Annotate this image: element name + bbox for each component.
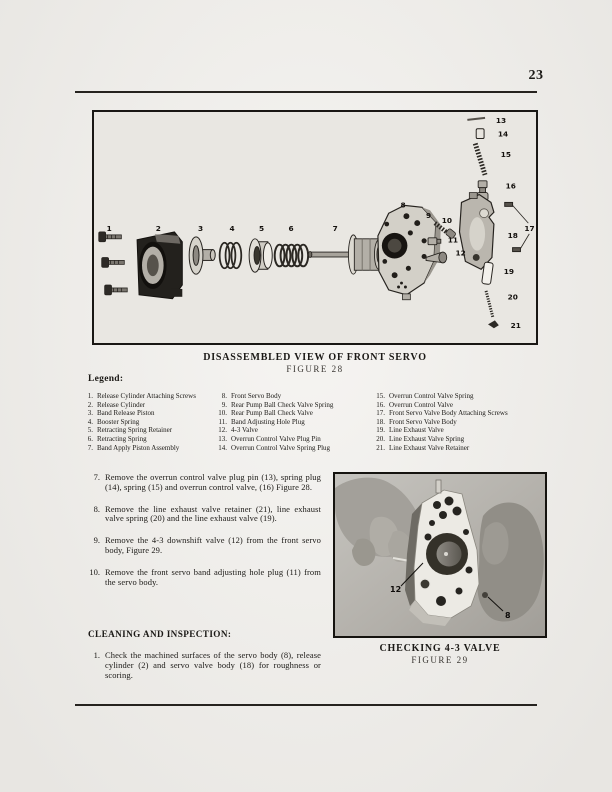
part-number-label: 4: [229, 224, 234, 233]
exploded-view-drawing: 123456789101112131415161718192021: [94, 112, 536, 343]
part-number-label: 13: [496, 116, 506, 125]
top-rule: [75, 91, 537, 93]
part-number-label: 9: [426, 211, 431, 220]
legend-item: 3.Band Release Piston: [80, 409, 232, 418]
legend-item-number: 12.: [214, 426, 227, 435]
part-retracting-spring: [275, 245, 308, 267]
part-number-label: 1: [107, 224, 112, 233]
legend-item-text: Front Servo Valve Body Attaching Screws: [389, 409, 508, 418]
legend-item-text: Rear Pump Ball Check Valve Spring: [231, 401, 333, 410]
part-number-label: 20: [508, 293, 518, 302]
legend-item-text: Band Adjusting Hole Plug: [231, 418, 305, 427]
part-number-label: 5: [259, 224, 264, 233]
legend-item-number: 17.: [372, 409, 385, 418]
legend-item-text: Band Apply Piston Assembly: [97, 444, 179, 453]
legend-item-number: 3.: [80, 409, 93, 418]
legend-item-number: 20.: [372, 435, 385, 444]
figure29-photo: 128: [333, 472, 547, 638]
legend-item-number: 6.: [80, 435, 93, 444]
part-hole-plug: [428, 238, 441, 245]
part-number-label: 3: [198, 224, 203, 233]
figure28-caption: DISASSEMBLED VIEW OF FRONT SERVO FIGURE …: [92, 352, 538, 374]
legend-item: 6.Retracting Spring: [80, 435, 232, 444]
legend-item-number: 18.: [372, 418, 385, 427]
legend-item: 19.Line Exhaust Valve: [372, 426, 540, 435]
part-spring-retainer: [249, 239, 272, 272]
part-exhaust-retainer: [488, 320, 499, 328]
manual-page: 23: [0, 0, 612, 792]
step-item: 9. Remove the 4-3 downshift valve (12) f…: [83, 536, 321, 556]
legend-item-number: 10.: [214, 409, 227, 418]
step-text: Remove the 4-3 downshift valve (12) from…: [105, 536, 321, 556]
checking-valve-photo: 128: [335, 474, 545, 636]
part-number-label: 16: [506, 182, 516, 191]
part-number-label: 17: [524, 224, 534, 233]
legend-column-2: 8.Front Servo Body 9.Rear Pump Ball Chec…: [214, 392, 374, 452]
legend-item-text: Overrun Control Valve Plug Pin: [231, 435, 321, 444]
legend-item-text: Release Cylinder: [97, 401, 145, 410]
legend-item-text: Retracting Spring: [97, 435, 147, 444]
part-band-release-piston: [189, 237, 215, 274]
figure28-title: DISASSEMBLED VIEW OF FRONT SERVO: [92, 352, 538, 363]
legend-item: 12.4-3 Valve: [214, 426, 374, 435]
part-front-servo-body: [378, 205, 441, 299]
part-attaching-screws: [99, 232, 128, 295]
legend-item: 14.Overrun Control Valve Spring Plug: [214, 444, 374, 453]
step-text: Remove the front servo band adjusting ho…: [105, 568, 321, 588]
legend-item-text: Booster Spring: [97, 418, 139, 427]
legend-item-number: 14.: [214, 444, 227, 453]
legend-item-number: 16.: [372, 401, 385, 410]
part-number-label: 21: [511, 321, 521, 330]
cleaning-section-heading: CLEANING AND INSPECTION:: [88, 629, 231, 639]
legend-item: 21.Line Exhaust Valve Retainer: [372, 444, 540, 453]
part-number-label: 15: [501, 150, 511, 159]
cleaning-step-item: 1. Check the machined surfaces of the se…: [83, 651, 321, 680]
legend-item-number: 11.: [214, 418, 227, 427]
figure28-diagram: 123456789101112131415161718192021: [92, 110, 538, 345]
legend-item-text: Retracting Spring Retainer: [97, 426, 172, 435]
part-number-label: 10: [442, 216, 452, 225]
legend-item-text: Band Release Piston: [97, 409, 155, 418]
legend-item-text: Overrun Control Valve: [389, 401, 453, 410]
part-overrun-spring: [475, 143, 485, 174]
legend-item-text: Overrun Control Valve Spring Plug: [231, 444, 330, 453]
page-number: 23: [524, 68, 548, 84]
legend-item: 18.Front Servo Valve Body: [372, 418, 540, 427]
part-number-label: 12: [390, 585, 401, 594]
legend-item-text: Release Cylinder Attaching Screws: [97, 392, 196, 401]
legend-item: 7.Band Apply Piston Assembly: [80, 444, 232, 453]
legend-column-1: 1.Release Cylinder Attaching Screws 2.Re…: [80, 392, 232, 452]
legend-item-text: Front Servo Body: [231, 392, 281, 401]
legend-item: 15.Overrun Control Valve Spring: [372, 392, 540, 401]
part-band-apply-piston: [308, 235, 383, 274]
legend-item-number: 13.: [214, 435, 227, 444]
legend-item-text: Line Exhaust Valve Retainer: [389, 444, 469, 453]
cleaning-steps: 1. Check the machined surfaces of the se…: [83, 651, 321, 692]
step-item: 10. Remove the front servo band adjustin…: [83, 568, 321, 588]
figure28-label: FIGURE 28: [92, 364, 538, 374]
part-spring-plug: [476, 129, 484, 139]
legend-item-text: Front Servo Valve Body: [389, 418, 457, 427]
legend-item: 11.Band Adjusting Hole Plug: [214, 418, 374, 427]
step-number: 9.: [83, 536, 100, 556]
legend-item-number: 7.: [80, 444, 93, 453]
step-number: 10.: [83, 568, 100, 588]
disassembly-steps: 7. Remove the overrun control valve plug…: [83, 473, 321, 599]
legend-item-number: 21.: [372, 444, 385, 453]
part-number-label: 19: [504, 267, 514, 276]
bottom-rule: [75, 704, 537, 706]
legend-item: 4.Booster Spring: [80, 418, 232, 427]
legend-item-number: 4.: [80, 418, 93, 427]
legend-item: 10.Rear Pump Ball Check Valve: [214, 409, 374, 418]
legend-heading: Legend:: [88, 374, 123, 384]
part-number-label: 8: [505, 611, 511, 620]
legend-item: 5.Retracting Spring Retainer: [80, 426, 232, 435]
legend-item-number: 2.: [80, 401, 93, 410]
legend-item-text: Line Exhaust Valve Spring: [389, 435, 464, 444]
part-release-cylinder: [137, 232, 182, 299]
step-text: Remove the line exhaust valve retainer (…: [105, 505, 321, 525]
legend-item-number: 19.: [372, 426, 385, 435]
part-number-label: 7: [333, 224, 338, 233]
legend-item: 2.Release Cylinder: [80, 401, 232, 410]
figure29-caption: CHECKING 4-3 VALVE FIGURE 29: [333, 643, 547, 665]
legend-item: 20.Line Exhaust Valve Spring: [372, 435, 540, 444]
part-number-label: 6: [288, 224, 293, 233]
step-number: 7.: [83, 473, 100, 493]
legend-item-number: 15.: [372, 392, 385, 401]
legend-column-3: 15.Overrun Control Valve Spring 16.Overr…: [372, 392, 540, 452]
step-item: 7. Remove the overrun control valve plug…: [83, 473, 321, 493]
step-item: 8. Remove the line exhaust valve retaine…: [83, 505, 321, 525]
legend-item-text: Line Exhaust Valve: [389, 426, 444, 435]
part-number-label: 18: [508, 231, 518, 240]
legend-item-number: 1.: [80, 392, 93, 401]
legend-item-number: 5.: [80, 426, 93, 435]
part-number-label: 11: [448, 236, 458, 245]
step-number: 8.: [83, 505, 100, 525]
legend-item-text: Rear Pump Ball Check Valve: [231, 409, 313, 418]
legend-item: 8.Front Servo Body: [214, 392, 374, 401]
step-text: Remove the overrun control valve plug pi…: [105, 473, 321, 493]
legend-item: 17.Front Servo Valve Body Attaching Scre…: [372, 409, 540, 418]
legend-item: 13.Overrun Control Valve Plug Pin: [214, 435, 374, 444]
part-plug-pin: [467, 118, 485, 120]
part-booster-spring: [220, 243, 242, 269]
part-number-label: 8: [401, 200, 406, 209]
step-text: Check the machined surfaces of the servo…: [105, 651, 321, 680]
legend-item: 1.Release Cylinder Attaching Screws: [80, 392, 232, 401]
legend-item-number: 9.: [214, 401, 227, 410]
step-number: 1.: [83, 651, 100, 680]
legend-item: 16.Overrun Control Valve: [372, 401, 540, 410]
legend-item-number: 8.: [214, 392, 227, 401]
part-number-label: 14: [498, 130, 508, 139]
legend-item-text: Overrun Control Valve Spring: [389, 392, 473, 401]
figure29-title: CHECKING 4-3 VALVE: [333, 643, 547, 654]
part-servo-valve-body: [459, 193, 493, 270]
legend-item: 9.Rear Pump Ball Check Valve Spring: [214, 401, 374, 410]
part-exhaust-spring: [486, 291, 493, 318]
figure29-label: FIGURE 29: [333, 655, 547, 665]
part-number-label: 2: [156, 224, 161, 233]
part-number-label: 12: [456, 249, 466, 258]
legend-item-text: 4-3 Valve: [231, 426, 258, 435]
